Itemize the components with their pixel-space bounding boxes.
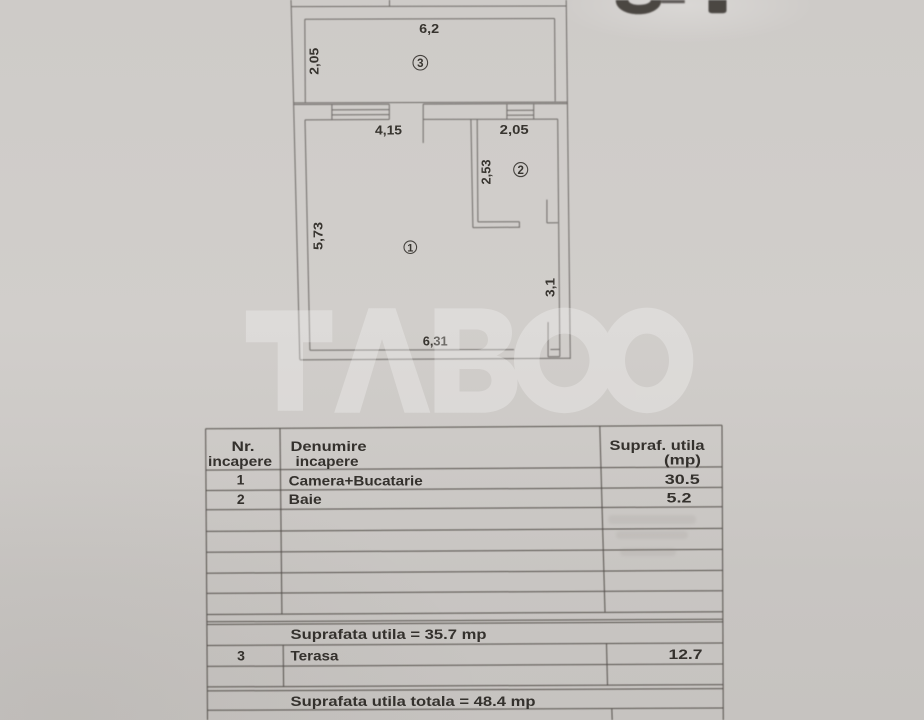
svg-text:Supraf. utila: Supraf. utila xyxy=(610,438,706,453)
svg-text:3,1: 3,1 xyxy=(543,278,558,297)
svg-text:2: 2 xyxy=(237,491,245,507)
svg-text:6,2: 6,2 xyxy=(419,21,439,36)
svg-text:3: 3 xyxy=(237,647,245,663)
svg-text:2,53: 2,53 xyxy=(479,160,494,185)
svg-text:2,05: 2,05 xyxy=(500,122,529,137)
svg-text:5.2: 5.2 xyxy=(667,489,692,505)
svg-text:incapere: incapere xyxy=(208,454,273,469)
svg-text:4,15: 4,15 xyxy=(375,122,402,137)
svg-text:Nr.: Nr. xyxy=(232,439,255,454)
svg-text:Camera+Bucatarie: Camera+Bucatarie xyxy=(289,472,423,488)
svg-text:Suprafata utila = 35.7 mp: Suprafata utila = 35.7 mp xyxy=(291,626,487,642)
svg-text:1: 1 xyxy=(407,242,413,254)
svg-text:(mp): (mp) xyxy=(664,453,701,468)
svg-text:12.7: 12.7 xyxy=(669,646,703,662)
svg-text:Terasa: Terasa xyxy=(291,648,339,664)
svg-text:3: 3 xyxy=(417,58,423,70)
svg-text:5,73: 5,73 xyxy=(311,222,326,250)
svg-text:Suprafata utila totala = 48.4: Suprafata utila totala = 48.4 mp xyxy=(291,693,536,709)
svg-text:Baie: Baie xyxy=(289,491,322,507)
svg-text:incapere: incapere xyxy=(296,454,360,469)
svg-text:1: 1 xyxy=(237,472,245,488)
svg-text:2,05: 2,05 xyxy=(307,48,322,75)
svg-text:Denumire: Denumire xyxy=(291,439,368,454)
svg-text:2: 2 xyxy=(517,165,523,177)
svg-text:30.5: 30.5 xyxy=(665,471,700,487)
